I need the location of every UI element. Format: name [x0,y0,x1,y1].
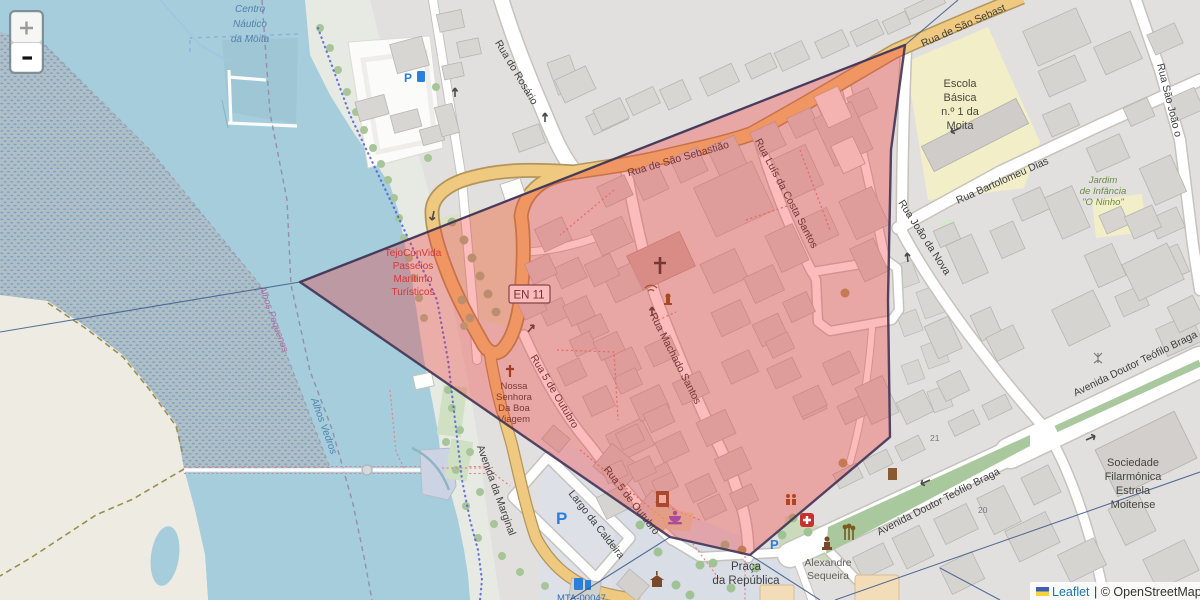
svg-text:P: P [404,71,412,85]
svg-text:21: 21 [930,433,940,443]
svg-text:P: P [770,537,779,552]
svg-text:20: 20 [978,505,988,515]
svg-text:de Infância: de Infância [1080,186,1126,197]
svg-text:Filarmónica: Filarmónica [1105,471,1163,483]
svg-text:da República: da República [712,575,780,587]
svg-text:Escola: Escola [943,78,977,90]
svg-text:Centro: Centro [235,4,265,15]
svg-text:Básica: Básica [943,92,977,104]
svg-text:da Moita: da Moita [231,34,270,45]
svg-text:Moita: Moita [947,120,975,132]
svg-text:Sequeira: Sequeira [807,570,849,582]
svg-text:Praça: Praça [731,561,762,573]
svg-text:Náutico: Náutico [233,19,267,30]
svg-text:Jardim: Jardim [1088,175,1118,186]
svg-text:P: P [556,509,567,528]
svg-text:Sociedade: Sociedade [1107,457,1159,469]
svg-text:n.º 1 da: n.º 1 da [941,106,980,118]
svg-text:MTA-00047: MTA-00047 [557,593,606,600]
svg-text:Alexandre: Alexandre [804,557,851,569]
svg-text:Leaflet: Leaflet [1052,585,1090,599]
svg-text:| © OpenStreetMap: | © OpenStreetMap [1094,585,1200,599]
svg-text:"O Ninho": "O Ninho" [1082,197,1124,208]
